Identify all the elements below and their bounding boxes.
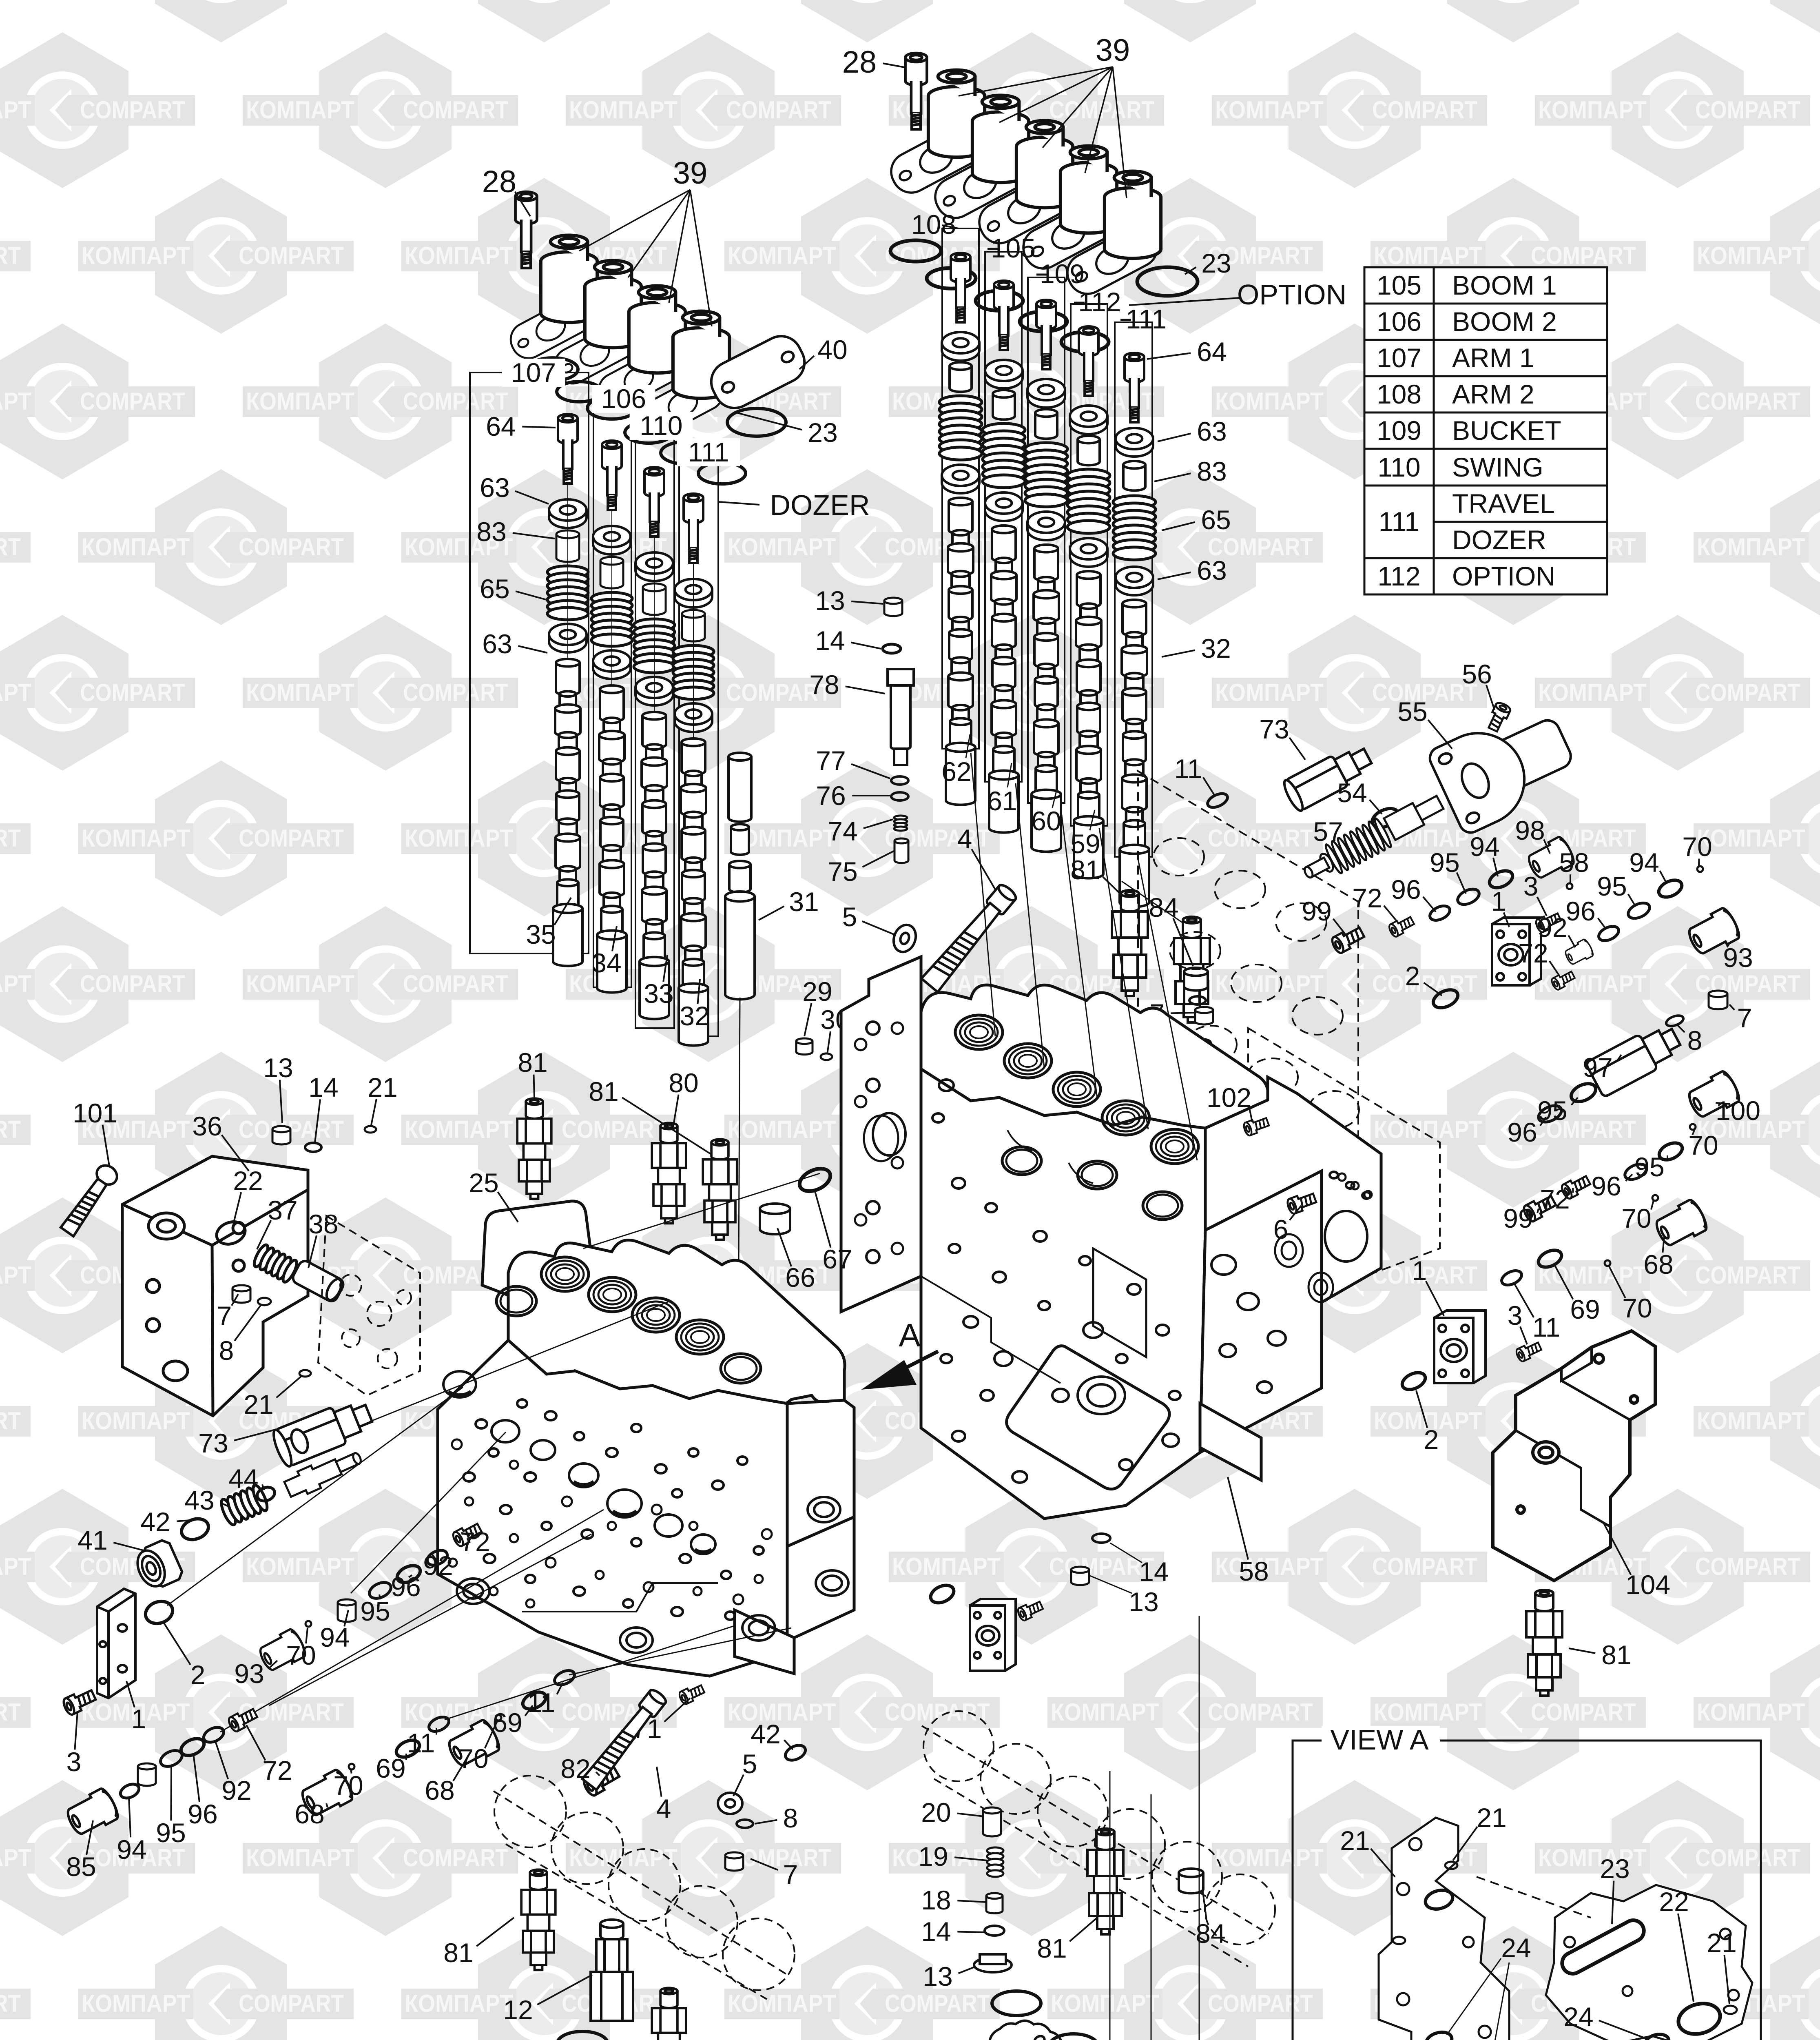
svg-text:22: 22: [1659, 1887, 1689, 1917]
svg-text:111: 111: [1379, 506, 1419, 537]
svg-text:7: 7: [1737, 1003, 1752, 1033]
svg-text:72: 72: [1518, 938, 1548, 968]
svg-text:13: 13: [263, 1053, 293, 1083]
svg-text:63: 63: [480, 472, 509, 503]
svg-text:TRAVEL: TRAVEL: [1452, 488, 1555, 519]
svg-text:21: 21: [1477, 1803, 1506, 1833]
svg-text:96: 96: [188, 1799, 217, 1829]
svg-text:81: 81: [589, 1076, 618, 1106]
svg-text:108: 108: [1377, 379, 1421, 409]
svg-text:54: 54: [1337, 778, 1367, 808]
svg-text:82: 82: [560, 1754, 590, 1784]
svg-text:7: 7: [783, 1859, 798, 1889]
svg-text:19: 19: [918, 1841, 948, 1871]
svg-text:28: 28: [842, 45, 877, 80]
svg-text:72: 72: [1540, 1184, 1570, 1214]
svg-text:11: 11: [407, 1728, 435, 1758]
svg-text:95: 95: [156, 1818, 186, 1848]
svg-text:ARM 1: ARM 1: [1452, 343, 1534, 373]
svg-text:58: 58: [1559, 847, 1589, 878]
svg-text:14: 14: [1139, 1557, 1169, 1587]
svg-text:13: 13: [815, 585, 845, 616]
svg-text:14: 14: [921, 1916, 951, 1947]
svg-text:20: 20: [921, 1797, 951, 1827]
svg-text:2: 2: [1405, 961, 1420, 991]
svg-text:101: 101: [73, 1098, 117, 1128]
svg-text:23: 23: [1201, 248, 1231, 278]
svg-text:38: 38: [308, 1209, 338, 1239]
svg-text:95: 95: [1430, 847, 1459, 878]
svg-text:111: 111: [1126, 304, 1167, 334]
svg-text:95: 95: [360, 1596, 390, 1626]
svg-text:92: 92: [221, 1775, 251, 1805]
svg-text:41: 41: [77, 1525, 107, 1555]
svg-text:6: 6: [1273, 1214, 1289, 1244]
svg-text:25: 25: [469, 1168, 498, 1198]
svg-text:94: 94: [117, 1834, 146, 1865]
svg-text:34: 34: [591, 948, 621, 978]
svg-text:84: 84: [1196, 1918, 1225, 1949]
svg-text:21: 21: [1707, 1928, 1736, 1958]
svg-text:21: 21: [368, 1072, 397, 1102]
svg-text:56: 56: [1462, 659, 1492, 689]
svg-text:76: 76: [816, 781, 846, 811]
svg-text:102: 102: [1207, 1082, 1251, 1113]
svg-text:23: 23: [808, 417, 837, 448]
svg-text:BUCKET: BUCKET: [1452, 415, 1561, 446]
svg-text:73: 73: [1259, 714, 1289, 744]
svg-text:81: 81: [1601, 1640, 1631, 1670]
svg-text:31: 31: [789, 887, 819, 917]
svg-text:DOZER: DOZER: [770, 489, 870, 521]
svg-text:14: 14: [815, 625, 845, 656]
svg-text:11: 11: [1532, 1312, 1561, 1342]
svg-text:68: 68: [425, 1775, 454, 1805]
svg-text:64: 64: [486, 411, 516, 441]
svg-text:108: 108: [911, 209, 956, 239]
svg-text:110: 110: [1377, 452, 1420, 482]
svg-text:35: 35: [526, 919, 556, 949]
svg-text:11: 11: [1174, 754, 1202, 784]
svg-text:44: 44: [228, 1463, 258, 1494]
svg-text:70: 70: [1622, 1293, 1652, 1323]
svg-text:BOOM 1: BOOM 1: [1452, 270, 1557, 300]
svg-text:33: 33: [644, 978, 673, 1009]
svg-text:92: 92: [423, 1550, 453, 1581]
svg-text:70: 70: [286, 1640, 316, 1670]
svg-text:83: 83: [1197, 456, 1227, 486]
svg-text:81: 81: [1070, 855, 1100, 885]
svg-text:DOZER: DOZER: [1452, 525, 1546, 555]
svg-text:96: 96: [391, 1572, 421, 1602]
svg-text:106: 106: [601, 384, 646, 414]
svg-text:68: 68: [294, 1799, 324, 1829]
svg-text:24: 24: [1501, 1933, 1531, 1963]
svg-text:42: 42: [140, 1507, 170, 1537]
svg-text:3: 3: [1508, 1300, 1523, 1330]
svg-text:72: 72: [460, 1527, 490, 1557]
svg-text:95: 95: [1597, 871, 1627, 901]
svg-text:72: 72: [1352, 883, 1382, 913]
svg-text:70: 70: [333, 1770, 363, 1801]
svg-text:18: 18: [921, 1885, 951, 1915]
svg-text:65: 65: [1201, 505, 1231, 535]
svg-text:99: 99: [1503, 1203, 1533, 1233]
svg-text:96: 96: [1391, 874, 1421, 905]
svg-text:4: 4: [656, 1794, 671, 1824]
svg-text:8: 8: [783, 1803, 798, 1833]
svg-text:80: 80: [669, 1068, 698, 1098]
svg-text:66: 66: [785, 1262, 815, 1293]
svg-text:60: 60: [1031, 806, 1061, 836]
svg-text:21: 21: [1340, 1825, 1370, 1856]
svg-text:70: 70: [1621, 1203, 1651, 1233]
svg-text:95: 95: [1537, 1095, 1567, 1126]
svg-text:98: 98: [1515, 815, 1545, 845]
svg-text:110: 110: [640, 410, 682, 441]
svg-text:81: 81: [443, 1938, 473, 1968]
svg-text:8: 8: [219, 1335, 234, 1366]
svg-text:61: 61: [987, 786, 1017, 816]
svg-text:93: 93: [234, 1659, 264, 1689]
svg-text:7: 7: [217, 1301, 232, 1331]
svg-text:100: 100: [1716, 1095, 1760, 1126]
svg-text:63: 63: [1197, 416, 1227, 446]
svg-text:97: 97: [1583, 1052, 1612, 1082]
svg-text:3: 3: [1523, 871, 1539, 901]
svg-text:37: 37: [268, 1195, 297, 1225]
svg-text:63: 63: [1197, 555, 1227, 585]
svg-text:72: 72: [262, 1755, 292, 1785]
svg-text:104: 104: [1625, 1570, 1670, 1600]
svg-text:A: A: [899, 1317, 921, 1353]
svg-text:32: 32: [1201, 633, 1231, 663]
svg-text:65: 65: [480, 574, 509, 604]
svg-text:83: 83: [476, 517, 506, 547]
svg-text:29: 29: [802, 976, 832, 1007]
svg-text:OPTION: OPTION: [1237, 279, 1346, 310]
svg-text:40: 40: [817, 335, 847, 365]
svg-text:84: 84: [1149, 892, 1178, 922]
svg-text:BOOM 2: BOOM 2: [1452, 306, 1557, 337]
svg-text:96: 96: [1565, 896, 1595, 926]
svg-text:81: 81: [518, 1047, 547, 1078]
svg-text:81: 81: [1037, 1933, 1067, 1963]
svg-text:57: 57: [1313, 816, 1343, 847]
svg-text:111: 111: [688, 437, 729, 467]
svg-text:4: 4: [957, 824, 972, 854]
svg-text:58: 58: [1239, 1556, 1269, 1586]
svg-text:8: 8: [1687, 1025, 1703, 1055]
svg-text:OPTION: OPTION: [1452, 561, 1555, 591]
svg-text:21: 21: [244, 1389, 273, 1419]
svg-text:94: 94: [1470, 832, 1499, 862]
svg-text:106: 106: [1377, 306, 1421, 337]
svg-text:ARM 2: ARM 2: [1452, 379, 1534, 409]
svg-text:22: 22: [233, 1166, 263, 1196]
svg-text:64: 64: [1197, 337, 1227, 367]
svg-text:55: 55: [1397, 696, 1427, 727]
svg-text:112: 112: [1078, 287, 1121, 317]
svg-text:2: 2: [190, 1660, 206, 1690]
svg-text:94: 94: [1629, 847, 1659, 878]
svg-text:107: 107: [1377, 343, 1421, 373]
svg-text:28: 28: [482, 164, 517, 199]
svg-text:11: 11: [527, 1687, 556, 1718]
svg-text:13: 13: [923, 1961, 952, 1991]
svg-text:69: 69: [492, 1707, 522, 1738]
svg-text:1: 1: [1412, 1255, 1427, 1286]
svg-text:112: 112: [1377, 561, 1420, 591]
svg-text:39: 39: [673, 156, 708, 191]
svg-text:5: 5: [742, 1749, 757, 1779]
svg-text:78: 78: [809, 670, 839, 700]
svg-text:67: 67: [822, 1244, 852, 1274]
svg-text:14: 14: [308, 1072, 338, 1102]
svg-text:32: 32: [680, 1001, 709, 1031]
svg-text:77: 77: [816, 745, 846, 776]
svg-text:12: 12: [503, 1995, 533, 2025]
svg-text:69: 69: [376, 1753, 405, 1783]
svg-text:13: 13: [1129, 1587, 1158, 1617]
svg-text:SWING: SWING: [1452, 452, 1543, 482]
svg-text:43: 43: [184, 1485, 214, 1515]
svg-text:68: 68: [1643, 1249, 1673, 1279]
svg-text:3: 3: [66, 1747, 82, 1777]
svg-text:36: 36: [192, 1111, 222, 1141]
svg-text:39: 39: [1096, 33, 1130, 68]
svg-text:1: 1: [1491, 886, 1506, 916]
svg-text:75: 75: [828, 856, 857, 887]
svg-text:95: 95: [1634, 1152, 1664, 1182]
svg-text:2: 2: [1424, 1424, 1439, 1455]
svg-text:107: 107: [511, 357, 556, 388]
svg-text:62: 62: [941, 756, 971, 787]
svg-text:96: 96: [1591, 1171, 1621, 1201]
svg-text:VIEW A: VIEW A: [1330, 1724, 1428, 1756]
svg-text:59: 59: [1070, 829, 1100, 859]
svg-text:5: 5: [842, 902, 857, 932]
svg-text:1: 1: [131, 1704, 146, 1734]
svg-text:69: 69: [1570, 1294, 1600, 1324]
svg-text:70: 70: [458, 1743, 488, 1774]
svg-text:24: 24: [1563, 2002, 1593, 2032]
svg-text:63: 63: [482, 629, 512, 659]
svg-text:42: 42: [751, 1719, 780, 1749]
svg-text:85: 85: [66, 1852, 96, 1882]
svg-text:99: 99: [1302, 896, 1331, 926]
svg-text:109: 109: [1377, 415, 1421, 446]
svg-text:23: 23: [1600, 1854, 1630, 1884]
svg-text:70: 70: [1682, 832, 1712, 862]
svg-text:74: 74: [828, 816, 857, 846]
svg-text:73: 73: [198, 1428, 228, 1458]
svg-text:94: 94: [320, 1622, 350, 1652]
svg-text:96: 96: [1507, 1117, 1537, 1147]
svg-text:105: 105: [1377, 270, 1421, 300]
